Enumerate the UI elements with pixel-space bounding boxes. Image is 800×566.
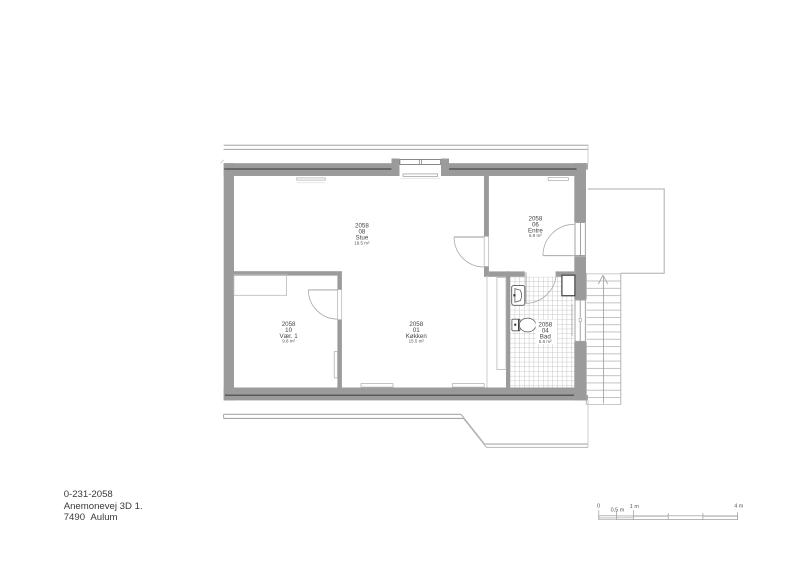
svg-text:1 m: 1 m bbox=[630, 504, 640, 510]
svg-text:9.8 m²: 9.8 m² bbox=[282, 339, 295, 344]
svg-text:0,5 m: 0,5 m bbox=[611, 508, 625, 514]
svg-text:5.6 m²: 5.6 m² bbox=[539, 339, 552, 344]
svg-text:0: 0 bbox=[597, 504, 600, 510]
svg-text:19.5 m²: 19.5 m² bbox=[354, 240, 370, 245]
svg-text:6.9 m²: 6.9 m² bbox=[529, 233, 542, 238]
svg-text:4 m: 4 m bbox=[734, 504, 744, 510]
svg-text:15.5 m²: 15.5 m² bbox=[409, 339, 425, 344]
svg-text:0-231-2058: 0-231-2058 bbox=[64, 489, 113, 500]
svg-text:Anemonevej 3D 1.: Anemonevej 3D 1. bbox=[64, 501, 143, 512]
svg-text:7490 Aulum: 7490 Aulum bbox=[64, 512, 118, 523]
